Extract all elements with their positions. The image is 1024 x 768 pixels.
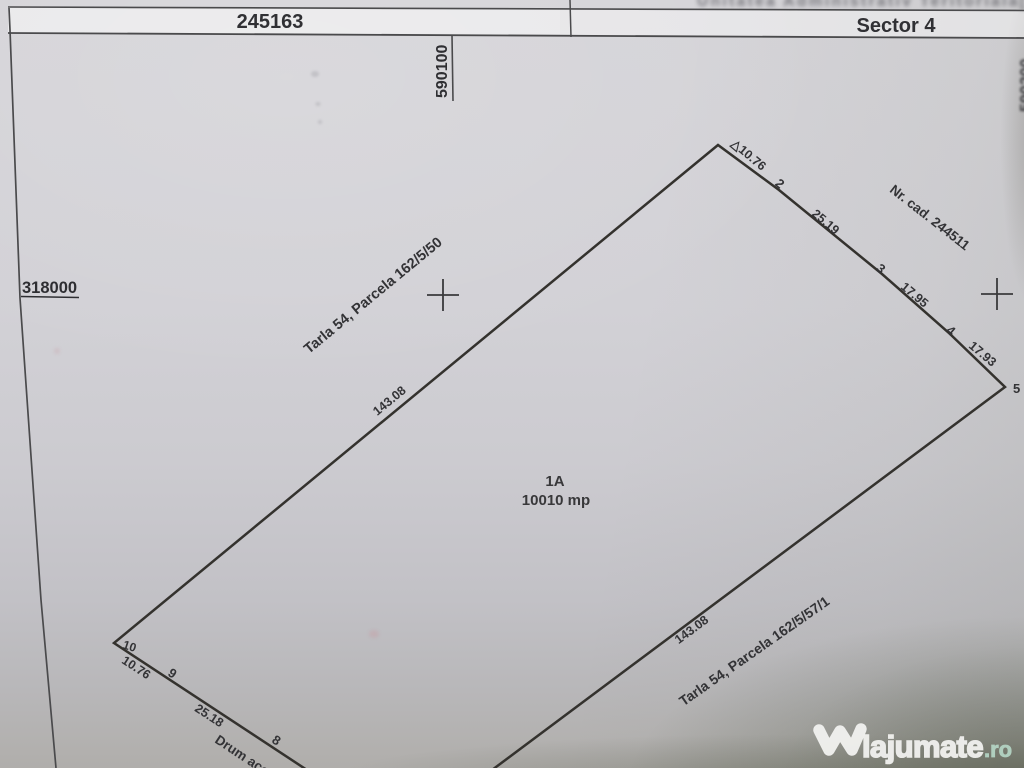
svg-text:25.19: 25.19 bbox=[809, 207, 842, 238]
svg-text:Unitatea Administrativ Teritor: Unitatea Administrativ Teritoriala[ bbox=[697, 0, 1024, 10]
svg-text:245163: 245163 bbox=[237, 11, 304, 33]
svg-text:590100: 590100 bbox=[434, 45, 451, 98]
svg-text:Nr. cad. 244511: Nr. cad. 244511 bbox=[887, 182, 973, 254]
svg-text:590200: 590200 bbox=[1018, 59, 1024, 112]
svg-text:5: 5 bbox=[1013, 381, 1020, 396]
svg-text:Sector 4: Sector 4 bbox=[857, 15, 937, 37]
svg-text:10: 10 bbox=[121, 638, 138, 656]
svg-text:10010 mp: 10010 mp bbox=[522, 492, 590, 509]
svg-text:17.95: 17.95 bbox=[898, 280, 931, 311]
svg-text:318000: 318000 bbox=[22, 279, 77, 297]
svg-text:Tarla 54, Parcela 162/5/50: Tarla 54, Parcela 162/5/50 bbox=[301, 234, 445, 357]
svg-text:lajumate: lajumate bbox=[862, 729, 983, 764]
svg-text:143.08: 143.08 bbox=[370, 383, 408, 418]
svg-text:.ro: .ro bbox=[984, 737, 1012, 762]
svg-text:1A: 1A bbox=[545, 473, 564, 490]
svg-text:Tarla 54, Parcela 162/5/57/1: Tarla 54, Parcela 162/5/57/1 bbox=[676, 593, 832, 709]
